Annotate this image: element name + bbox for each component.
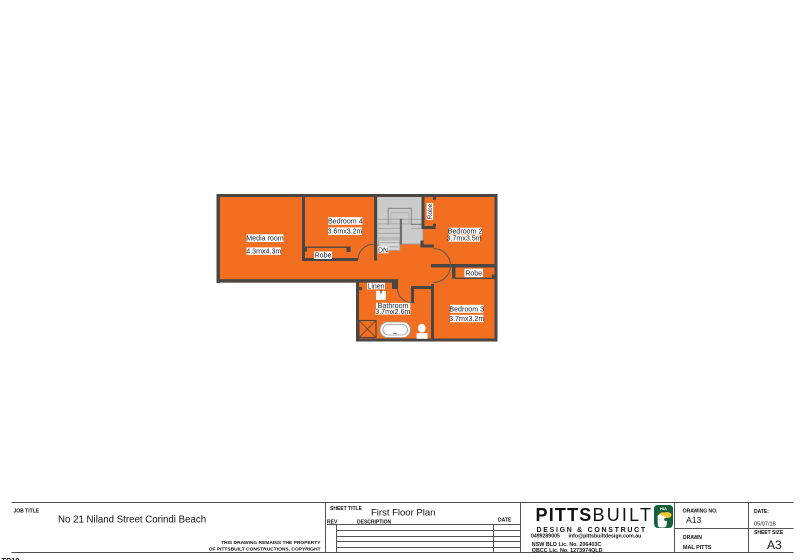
svg-text:MAL PITTS: MAL PITTS (683, 545, 712, 551)
svg-text:Robe: Robe (427, 203, 434, 219)
svg-text:A13: A13 (686, 515, 702, 525)
svg-text:0499289005: 0499289005 (531, 534, 560, 540)
svg-text:Bedroom 4: Bedroom 4 (328, 217, 363, 225)
svg-text:HIA: HIA (660, 506, 667, 511)
svg-text:4.3mx4.3m: 4.3mx4.3m (246, 248, 281, 256)
svg-text:3.7mx3.2m: 3.7mx3.2m (449, 315, 484, 323)
svg-text:SHEET TITLE: SHEET TITLE (330, 506, 363, 512)
svg-text:PITTSBUILT: PITTSBUILT (536, 505, 654, 525)
svg-text:DRAWING NO.: DRAWING NO. (683, 509, 718, 515)
svg-text:05/07/18: 05/07/18 (754, 522, 776, 528)
svg-text:DATE:: DATE: (754, 509, 769, 515)
svg-text:THIS DRAWING REMAINS THE PROPE: THIS DRAWING REMAINS THE PROPERTY (221, 540, 321, 546)
svg-text:3.7mx3.5m: 3.7mx3.5m (447, 235, 482, 243)
svg-text:A3: A3 (767, 538, 782, 552)
svg-text:NSW BLD Lic. No. 206403C: NSW BLD Lic. No. 206403C (532, 542, 602, 548)
svg-text:Robe: Robe (465, 271, 482, 278)
svg-text:JOB TITLE: JOB TITLE (14, 509, 40, 515)
svg-text:Robe: Robe (315, 253, 332, 260)
svg-text:First Floor Plan: First Floor Plan (371, 508, 435, 519)
svg-text:3.7mx2.6m: 3.7mx2.6m (375, 308, 410, 316)
svg-text:Linen: Linen (367, 284, 384, 291)
svg-text:QBCC Lic. No. 1273974QLD: QBCC Lic. No. 1273974QLD (532, 548, 603, 554)
svg-text:info@pittsbuiltdesign.com.au: info@pittsbuiltdesign.com.au (569, 534, 642, 540)
svg-text:REV: REV (327, 520, 338, 526)
svg-text:Media room: Media room (246, 235, 284, 243)
svg-text:Bedroom 3: Bedroom 3 (449, 305, 484, 313)
svg-text:No 21 Niland Street Corindi Be: No 21 Niland Street Corindi Beach (58, 515, 206, 526)
svg-text:SHEET SIZE: SHEET SIZE (754, 530, 784, 536)
svg-text:DESCRIPTION: DESCRIPTION (357, 520, 392, 526)
svg-text:DATE: DATE (498, 518, 512, 524)
svg-text:TP10: TP10 (2, 556, 20, 560)
svg-text:DN: DN (378, 247, 388, 254)
svg-text:3.6mx3.2m: 3.6mx3.2m (327, 228, 362, 236)
svg-text:OF PITTSBUILT CONSTRUCTIONS, C: OF PITTSBUILT CONSTRUCTIONS, COPYRIGHT (209, 547, 321, 553)
svg-text:DRAWN: DRAWN (683, 535, 702, 541)
